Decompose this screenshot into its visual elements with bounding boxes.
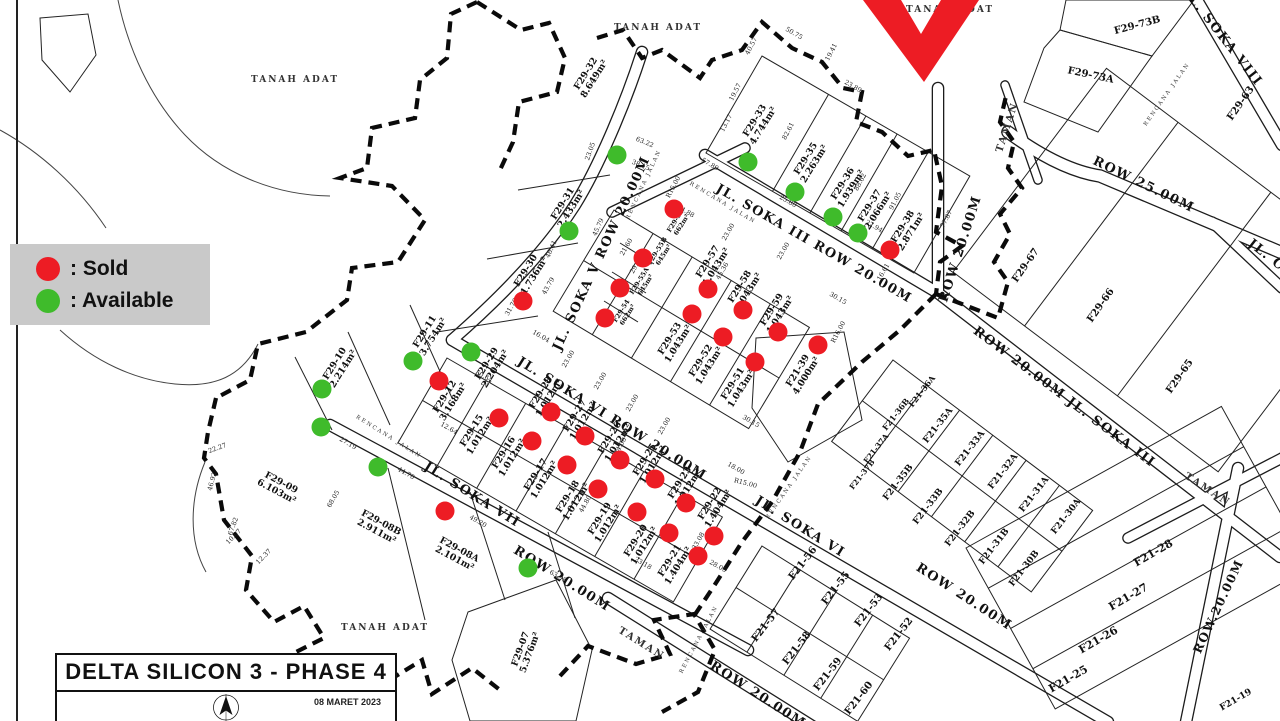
available-dot bbox=[462, 343, 481, 362]
lot-label: F21-33B bbox=[911, 487, 945, 527]
area-label: TANAH ADAT bbox=[341, 623, 429, 633]
sold-dot bbox=[589, 480, 608, 499]
sold-dot bbox=[665, 200, 684, 219]
available-dot bbox=[849, 224, 868, 243]
dimension-label: 18.00 bbox=[726, 460, 746, 476]
lot-label: F29-352.263m² bbox=[790, 138, 830, 185]
available-dot-icon bbox=[36, 289, 60, 313]
available-dot bbox=[313, 380, 332, 399]
area-label: RENCANA JALAN bbox=[1143, 61, 1192, 127]
dimension-label: R16.00 bbox=[829, 320, 847, 345]
sold-dot-icon bbox=[36, 257, 60, 281]
lot-label: F29-096.103m² bbox=[255, 468, 302, 507]
street-label: JL. SOKA VIII bbox=[1180, 0, 1265, 89]
site-plan-map: F29-328.649m²F29-312.433m²F29-301.736m²F… bbox=[0, 0, 1280, 721]
dimension-label: 68.05 bbox=[325, 489, 341, 509]
sold-dot bbox=[646, 470, 665, 489]
lot-label: F21-31A bbox=[1018, 474, 1052, 514]
sold-dot bbox=[634, 249, 653, 268]
lot-label: F29-161.012m² bbox=[488, 432, 528, 479]
lot-label: F21-59 bbox=[812, 656, 845, 694]
legend: : Sold : Available bbox=[10, 244, 210, 325]
compass-icon bbox=[198, 693, 254, 721]
sold-dot bbox=[699, 280, 718, 299]
lot-label: F21-37A bbox=[862, 432, 891, 465]
sold-label: : Sold bbox=[70, 257, 128, 281]
lot-label: F21-30B bbox=[1007, 549, 1041, 589]
dimension-label: 23.00 bbox=[592, 371, 608, 391]
sold-dot bbox=[596, 309, 615, 328]
dimension-label: 40.57 bbox=[743, 36, 759, 56]
lot-label: F21-36A bbox=[906, 373, 937, 409]
sold-dot bbox=[611, 451, 630, 470]
legend-row-sold: : Sold bbox=[36, 257, 210, 281]
dimension-label: 19.41 bbox=[823, 42, 839, 62]
dimension-label: 43.79 bbox=[540, 276, 556, 296]
dimension-label: 23.18 bbox=[633, 555, 653, 571]
dimension-label: 30.15 bbox=[741, 413, 761, 429]
lot-label: F21-30A bbox=[1050, 496, 1084, 536]
lot-label: F21-19 bbox=[1218, 687, 1253, 713]
dimension-label: 12.64 bbox=[439, 420, 459, 436]
site-plan-page: F29-328.649m²F29-312.433m²F29-301.736m²F… bbox=[0, 0, 1280, 721]
lot-label: F21-25 bbox=[1046, 663, 1090, 696]
lot-label: F29-08A2.101m² bbox=[433, 535, 482, 574]
lot-label: F29-113.754m² bbox=[409, 311, 449, 358]
sold-dot bbox=[714, 328, 733, 347]
dimension-label: 21.60 bbox=[618, 237, 634, 257]
sold-dot bbox=[523, 432, 542, 451]
lot-label: F21-58 bbox=[781, 630, 814, 668]
available-dot bbox=[560, 222, 579, 241]
lot-label: F29-73B bbox=[1113, 14, 1162, 37]
lot-label: F29-191.012m² bbox=[584, 498, 624, 545]
sold-dot bbox=[542, 403, 561, 422]
sold-dot bbox=[769, 323, 788, 342]
dimension-label: 13.17 bbox=[718, 113, 734, 133]
legend-row-available: : Available bbox=[36, 289, 210, 313]
lot-label: F21-28 bbox=[1131, 536, 1175, 569]
available-dot bbox=[824, 208, 843, 227]
street-label: ROW 20.00M bbox=[707, 658, 809, 721]
dimension-label: 63.22 bbox=[635, 135, 655, 149]
dimension-label: 16.04 bbox=[531, 328, 551, 344]
lot-label: F29-08B2.911m² bbox=[355, 508, 404, 547]
title-sub-row: 08 MARET 2023 bbox=[57, 692, 395, 721]
title-block: DELTA SILICON 3 - PHASE 4 08 MARET 2023 bbox=[55, 653, 397, 721]
sold-dot bbox=[558, 456, 577, 475]
sold-dot bbox=[490, 409, 509, 428]
sold-dot bbox=[611, 279, 630, 298]
lot-label: F21-394.000m² bbox=[782, 350, 822, 397]
lot-label: F29-211.404m² bbox=[654, 540, 694, 587]
sold-dot bbox=[746, 353, 765, 372]
plan-date: 08 MARET 2023 bbox=[314, 697, 381, 707]
dimension-label: 12.37 bbox=[254, 547, 273, 566]
sold-dot bbox=[628, 503, 647, 522]
sold-dot bbox=[430, 372, 449, 391]
lot-label: F21-32A bbox=[987, 451, 1021, 491]
lot-label: F21-27 bbox=[1106, 581, 1150, 614]
sold-dot bbox=[705, 527, 724, 546]
lot-label: F21-52 bbox=[883, 616, 916, 654]
sold-dot bbox=[734, 301, 753, 320]
dimension-label: 50.75 bbox=[784, 25, 804, 41]
lot-label: F29-66 bbox=[1085, 286, 1116, 324]
street-label: ROW 20.00M JL. SOKA III bbox=[970, 324, 1158, 471]
sold-dot bbox=[576, 427, 595, 446]
lot-label: F21-35A bbox=[922, 405, 956, 445]
sold-dot bbox=[809, 336, 828, 355]
lot-label: F21-37B bbox=[848, 458, 877, 492]
lot-label: F29-54662m² bbox=[611, 298, 638, 328]
available-label: : Available bbox=[70, 289, 173, 313]
sold-dot bbox=[881, 241, 900, 260]
area-label: TANAH ADAT bbox=[251, 75, 339, 85]
lot-label: F29-65 bbox=[1164, 357, 1195, 395]
lot-label: F29-075.376m² bbox=[508, 627, 542, 674]
available-dot bbox=[369, 458, 388, 477]
dimension-label: 23.00 bbox=[656, 416, 672, 436]
dimension-label: 30.15 bbox=[828, 290, 848, 306]
lot-label: F21-53 bbox=[853, 592, 886, 630]
lot-label: F21-32B bbox=[943, 509, 977, 549]
lot-label: F29-334.744m² bbox=[739, 100, 779, 147]
sold-dot bbox=[436, 502, 455, 521]
dimension-label: R15.00 bbox=[733, 476, 758, 490]
dimension-label: 82.61 bbox=[780, 121, 796, 141]
dimension-label: 23.00 bbox=[624, 393, 640, 413]
lot-label: F21-60 bbox=[843, 680, 876, 718]
available-dot bbox=[519, 559, 538, 578]
sold-dot bbox=[689, 547, 708, 566]
sold-dot bbox=[677, 494, 696, 513]
dimension-label: 23.00 bbox=[720, 222, 736, 242]
sold-dot bbox=[660, 524, 679, 543]
sold-dot bbox=[683, 305, 702, 324]
lot-label: F29-73A bbox=[1066, 65, 1114, 86]
available-dot bbox=[608, 146, 627, 165]
available-dot bbox=[786, 183, 805, 202]
dimension-label: 22.27 bbox=[207, 441, 227, 455]
available-dot bbox=[312, 418, 331, 437]
lot-label: F29-67 bbox=[1010, 246, 1041, 284]
dimension-label: 28.00 bbox=[708, 558, 728, 574]
lot-label: F29-328.649m² bbox=[570, 53, 610, 100]
sold-dot bbox=[514, 292, 533, 311]
lot-label: F21-55 bbox=[820, 570, 853, 608]
available-dot bbox=[404, 352, 423, 371]
lot-label: F21-57 bbox=[750, 607, 783, 645]
lot-label: F29-531.043m² bbox=[654, 318, 694, 365]
plan-title: DELTA SILICON 3 - PHASE 4 bbox=[57, 655, 395, 692]
lot-label: F21-26 bbox=[1076, 623, 1120, 656]
available-dot bbox=[739, 153, 758, 172]
lot-label: F21-36B bbox=[880, 396, 911, 432]
dimension-label: 23.00 bbox=[775, 241, 791, 261]
area-label: TANAH ADAT bbox=[614, 23, 702, 33]
